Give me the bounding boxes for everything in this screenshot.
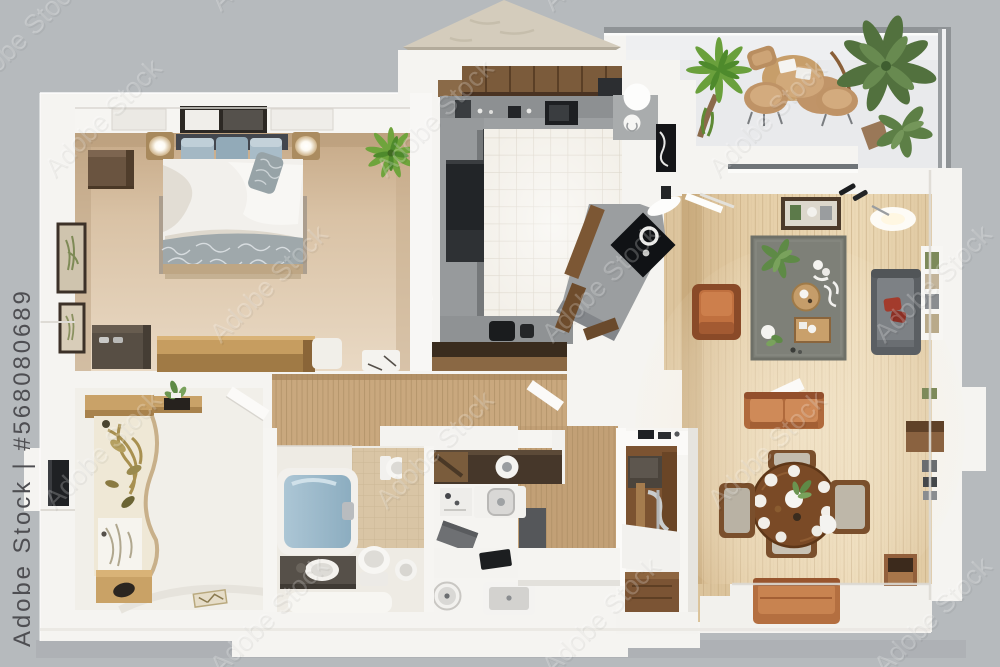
svg-text:Adobe Stock | #568080689: Adobe Stock | #568080689 bbox=[9, 288, 36, 647]
